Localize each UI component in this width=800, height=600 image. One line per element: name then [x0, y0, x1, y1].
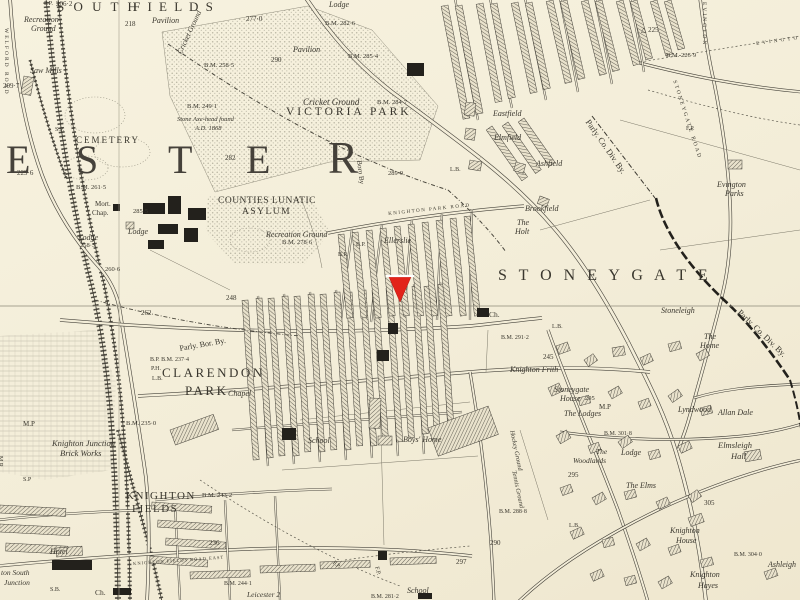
victoria-park-area	[162, 6, 438, 264]
map-linework	[0, 0, 800, 600]
historical-map: S O U T HF I E L D SPavilionCricket Grou…	[0, 0, 800, 600]
allotment-gardens	[0, 330, 116, 480]
